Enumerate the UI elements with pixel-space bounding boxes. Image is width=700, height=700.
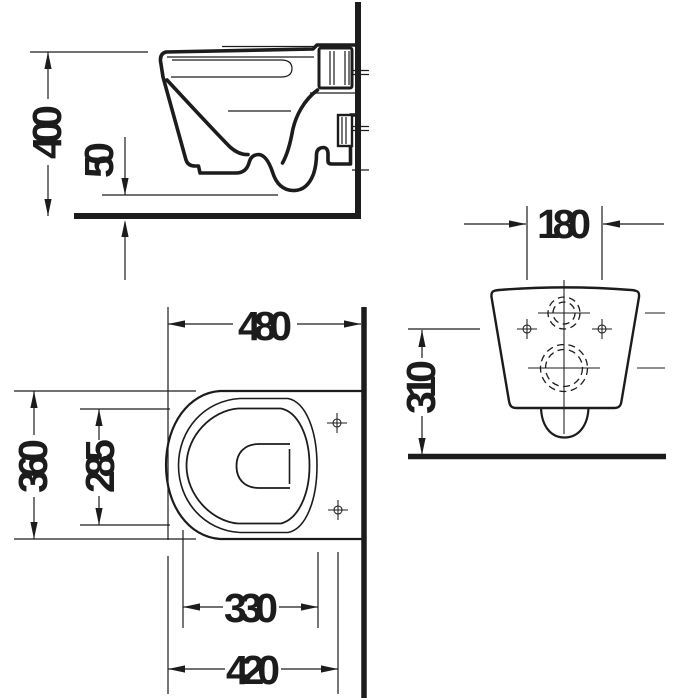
dim-285-arrow-up <box>95 409 102 426</box>
dim-420-label: 420 <box>226 647 280 693</box>
dim-310-arrow-down <box>418 438 425 455</box>
dim-360-arrow-up <box>30 391 37 408</box>
dim-400-arrow-down <box>44 199 51 216</box>
dim-50-label: 50 <box>76 142 122 178</box>
dim-330-arrow-right <box>301 603 318 610</box>
dim-285-label: 285 <box>77 439 123 493</box>
rear-outlet-dome <box>541 408 589 438</box>
side-drain-connector-box <box>338 115 352 146</box>
dim-180-arrow-right-pointing <box>509 220 526 227</box>
dim-330-label: 330 <box>224 585 278 631</box>
dim-50-floor-arrow-up <box>121 220 128 237</box>
dim-420-arrow-right <box>321 665 338 672</box>
dim-360-arrow-down <box>30 522 37 539</box>
top-plan-view: 480 360 285 330 420 <box>10 303 364 698</box>
dim-480-label: 480 <box>238 303 292 349</box>
dim-310-arrow-up <box>418 330 425 347</box>
dim-400-arrow-up <box>44 52 51 69</box>
side-supply-connector-box <box>319 48 352 88</box>
dim-180-label: 180 <box>537 201 591 247</box>
dim-50-arrow-down <box>121 178 128 195</box>
side-elevation-view: 400 50 <box>24 2 369 280</box>
dim-400-label: 400 <box>24 105 70 159</box>
rear-body-outline <box>491 287 639 408</box>
technical-drawing-canvas: 400 50 <box>0 0 700 700</box>
dim-310-label: 310 <box>398 360 444 414</box>
dim-330-arrow-left <box>183 603 200 610</box>
dim-360-label: 360 <box>10 439 56 493</box>
plan-body-outline <box>166 391 362 539</box>
dim-480-arrow-right <box>344 320 361 327</box>
dim-480-arrow-left <box>168 320 185 327</box>
dim-180-arrow-left-pointing <box>603 220 620 227</box>
rear-elevation-view: 180 310 <box>398 201 666 457</box>
dim-285-arrow-down <box>95 508 102 525</box>
dim-420-arrow-left <box>168 665 185 672</box>
